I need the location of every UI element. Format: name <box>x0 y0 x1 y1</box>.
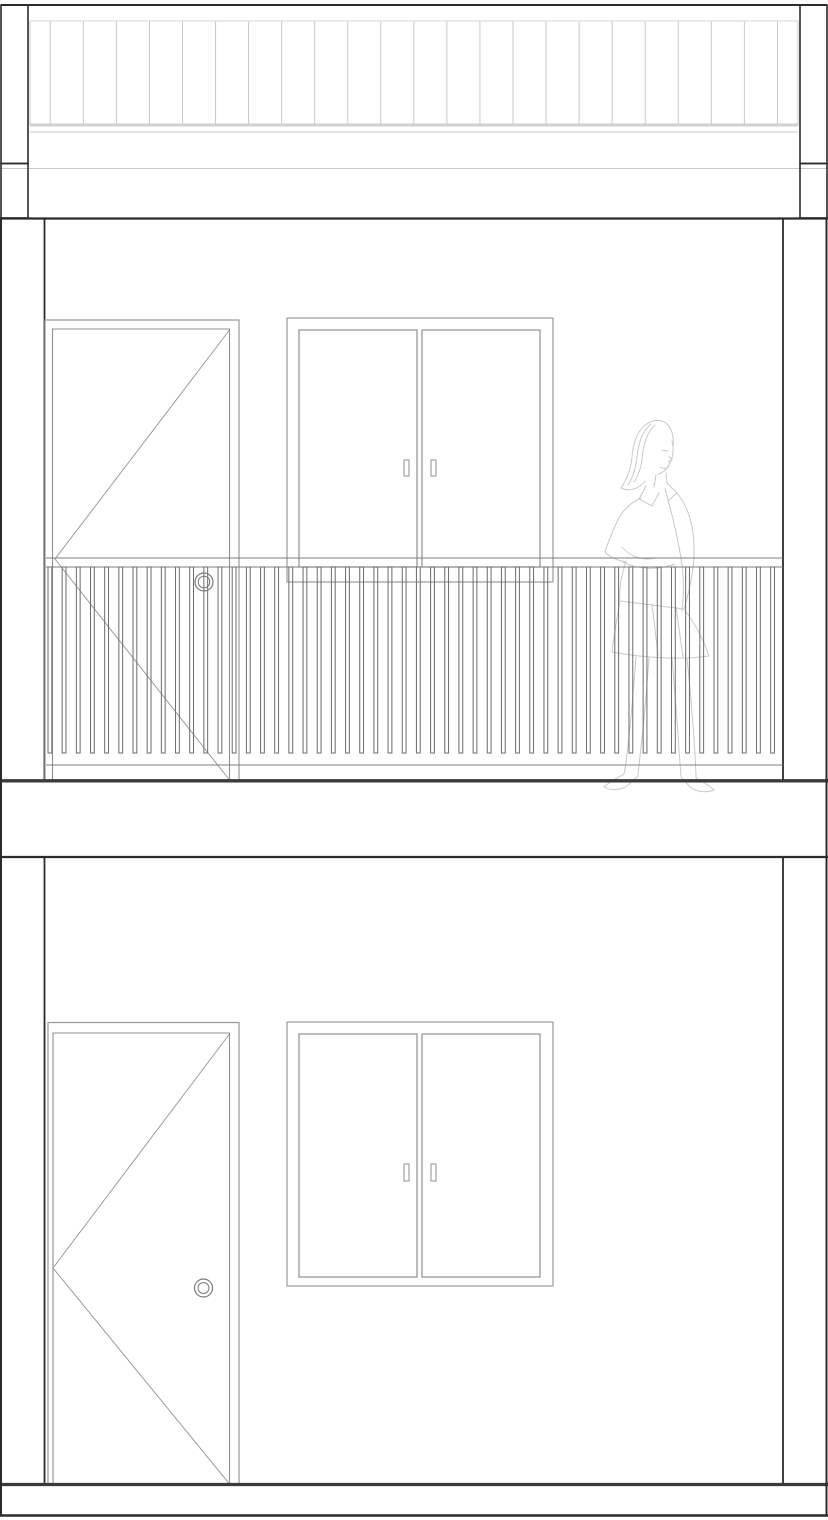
human-figure <box>604 420 714 791</box>
elevation-drawing <box>0 0 828 1520</box>
lower-storey-walls <box>45 857 784 1485</box>
lower-storey <box>45 857 784 1485</box>
upper-balcony-door <box>45 320 239 781</box>
lower-sliding-window <box>287 1022 553 1286</box>
building-outline <box>1 219 827 1516</box>
roof-band <box>0 5 828 219</box>
floor-slab <box>0 781 828 857</box>
lower-entry-door <box>48 1023 239 1485</box>
elevation-svg <box>0 0 828 1520</box>
roof-siding <box>30 21 798 125</box>
upper-storey-walls <box>45 219 784 781</box>
upper-sliding-window <box>287 318 553 582</box>
base-slab <box>0 1485 828 1516</box>
upper-storey <box>45 219 784 792</box>
